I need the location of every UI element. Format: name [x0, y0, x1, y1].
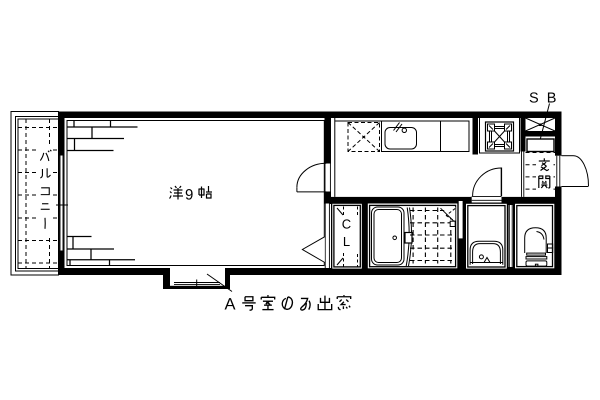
svg-text:A: A — [225, 296, 236, 314]
svg-text:C: C — [342, 217, 351, 232]
svg-text:9: 9 — [185, 187, 193, 204]
svg-text:S B: S B — [529, 91, 558, 107]
svg-text:L: L — [343, 234, 350, 249]
